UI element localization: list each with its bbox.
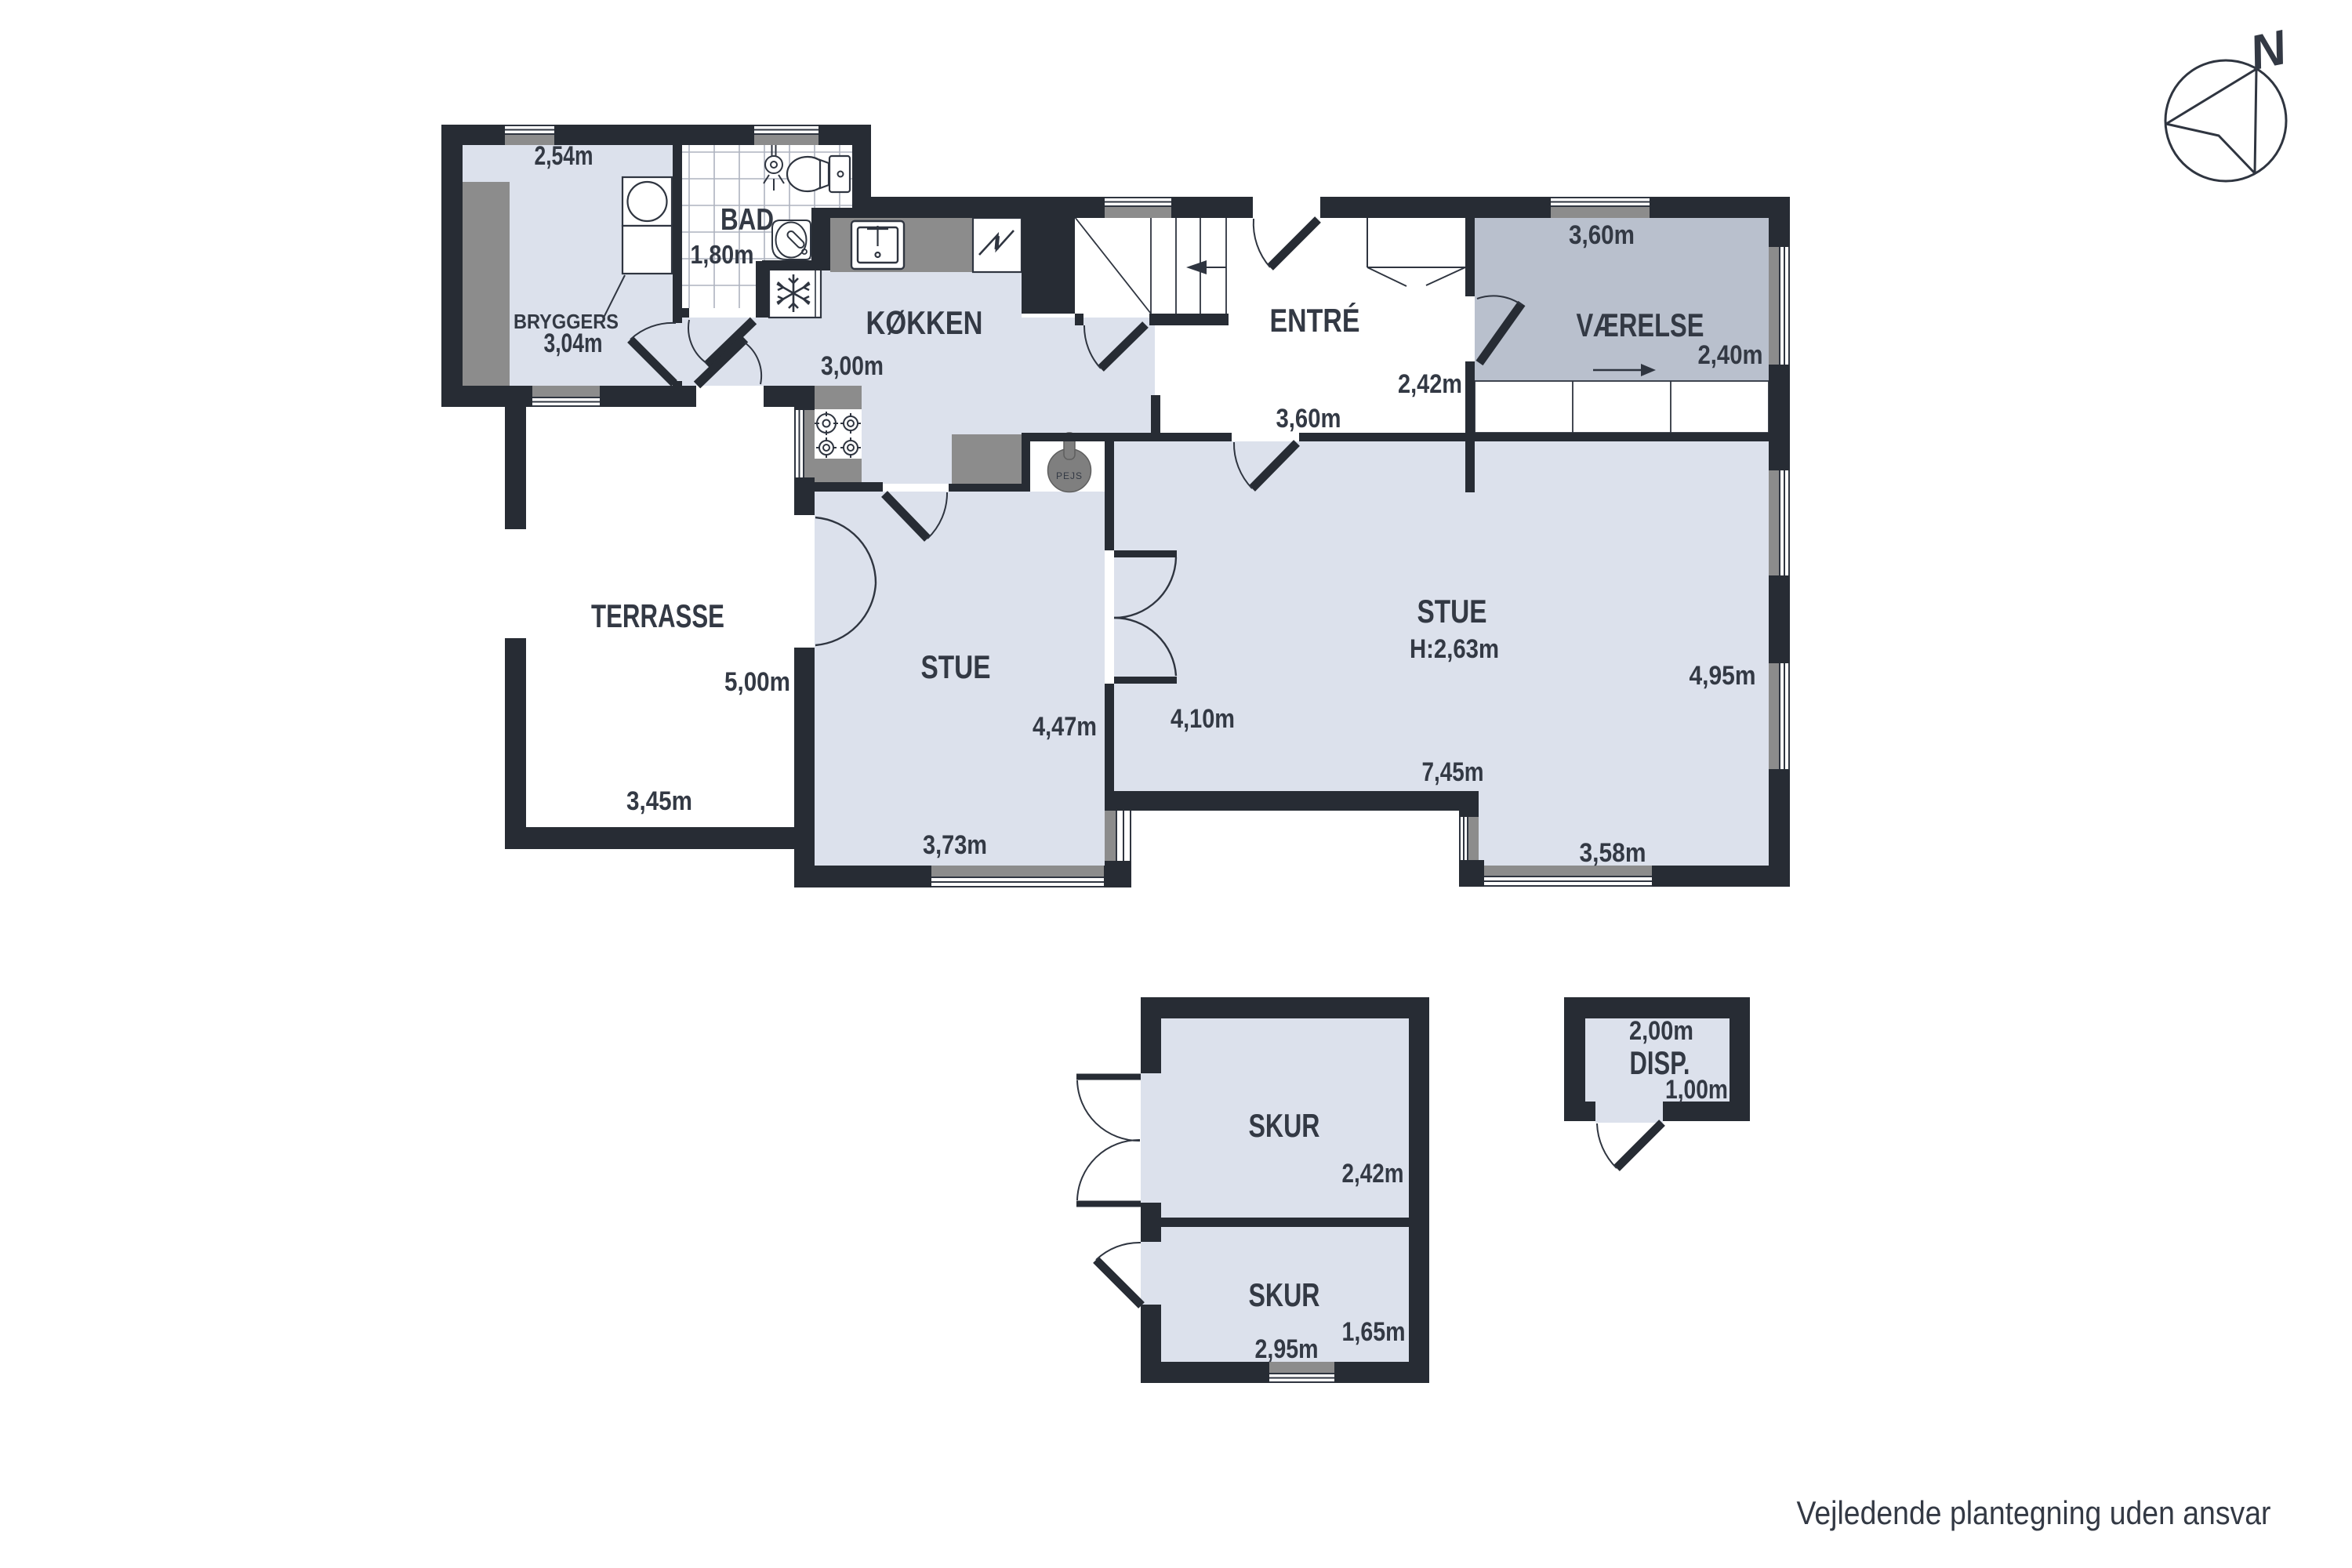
svg-text:2,54m: 2,54m: [535, 141, 593, 171]
svg-text:TERRASSE: TERRASSE: [591, 597, 724, 634]
svg-text:2,95m: 2,95m: [1255, 1334, 1319, 1364]
svg-text:4,95m: 4,95m: [1690, 661, 1756, 691]
svg-text:STUE: STUE: [1417, 593, 1487, 630]
svg-text:3,45m: 3,45m: [626, 786, 692, 816]
svg-text:Vejledende plantegning uden an: Vejledende plantegning uden ansvar: [1797, 1494, 2271, 1531]
svg-text:H:2,63m: H:2,63m: [1410, 634, 1499, 664]
svg-text:3,04m: 3,04m: [544, 328, 603, 358]
svg-text:4,10m: 4,10m: [1171, 704, 1235, 734]
svg-text:2,40m: 2,40m: [1698, 340, 1763, 370]
svg-text:ENTRÉ: ENTRÉ: [1270, 302, 1360, 339]
svg-text:3,00m: 3,00m: [821, 351, 884, 381]
svg-text:PEJS: PEJS: [1056, 470, 1083, 481]
svg-text:3,60m: 3,60m: [1276, 404, 1341, 434]
svg-text:SKUR: SKUR: [1249, 1107, 1320, 1144]
svg-text:3,58m: 3,58m: [1580, 838, 1646, 868]
svg-text:STUE: STUE: [921, 648, 991, 685]
svg-text:4,47m: 4,47m: [1033, 712, 1097, 742]
svg-text:BAD: BAD: [720, 203, 774, 237]
svg-text:5,00m: 5,00m: [724, 667, 790, 697]
svg-text:1,65m: 1,65m: [1342, 1317, 1406, 1347]
svg-text:2,42m: 2,42m: [1342, 1159, 1404, 1189]
svg-text:1,80m: 1,80m: [691, 240, 754, 269]
svg-text:SKUR: SKUR: [1249, 1276, 1320, 1313]
svg-text:VÆRELSE: VÆRELSE: [1577, 307, 1704, 343]
svg-text:3,60m: 3,60m: [1569, 220, 1635, 250]
svg-text:1,00m: 1,00m: [1665, 1075, 1728, 1105]
svg-text:7,45m: 7,45m: [1422, 757, 1484, 787]
svg-text:2,42m: 2,42m: [1398, 369, 1462, 399]
svg-text:2,00m: 2,00m: [1629, 1016, 1693, 1046]
svg-text:KØKKEN: KØKKEN: [866, 304, 983, 341]
svg-text:3,73m: 3,73m: [923, 830, 987, 860]
